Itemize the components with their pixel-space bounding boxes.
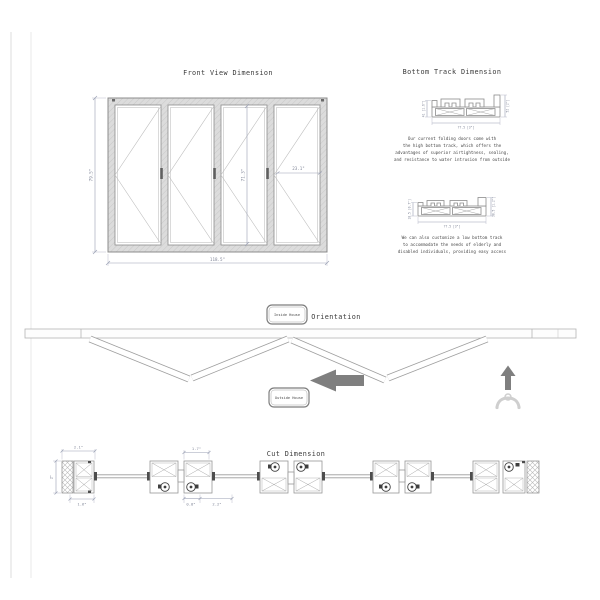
front-view-title: Front View Dimension: [183, 69, 273, 77]
svg-text:77.5 [3"]: 77.5 [3"]: [444, 225, 461, 229]
svg-text:advantages of superior airtigh: advantages of superior airtightness, sea…: [395, 150, 508, 155]
slide-direction-arrow-icon: [310, 370, 364, 392]
cut-hinge-cluster-top: [260, 461, 322, 493]
sheet-border: [11, 32, 31, 578]
svg-text:23.1": 23.1": [292, 166, 305, 171]
svg-text:77.5 [3"]: 77.5 [3"]: [458, 126, 475, 130]
front-width-dimension: 118.5": [106, 254, 329, 266]
svg-text:and resistance to water intrus: and resistance to water intrusion from o…: [394, 157, 510, 162]
svg-text:Our current folding doors come: Our current folding doors come with: [408, 136, 497, 141]
bottom-track-title: Bottom Track Dimension: [403, 68, 502, 76]
person-icon: [495, 394, 520, 409]
svg-text:to accommodate the needs of el: to accommodate the needs of elderly and: [403, 242, 502, 247]
low-track-profile: [418, 198, 486, 217]
cut-dimension-section: Cut Dimension: [49, 445, 540, 507]
svg-text:Inside House: Inside House: [274, 313, 300, 317]
front-height-dimension: 79.5": [89, 96, 107, 254]
svg-text:Outside House: Outside House: [275, 396, 303, 400]
svg-text:the high bottom track, which o: the high bottom track, which offers the: [403, 143, 502, 148]
svg-text:2.2": 2.2": [212, 502, 221, 507]
svg-text:disabled individuals, providin: disabled individuals, providing easy acc…: [398, 249, 507, 254]
front-view-section: Front View Dimension: [89, 69, 330, 266]
cut-glazing: [431, 472, 473, 481]
orientation-title: Orientation: [311, 313, 360, 321]
cut-dimension-title: Cut Dimension: [267, 450, 325, 458]
drawing-sheet: Front View Dimension: [0, 0, 600, 600]
svg-text:71.3": 71.3": [241, 169, 246, 182]
cut-left-jamb: [62, 461, 94, 493]
svg-text:79.5": 79.5": [89, 169, 94, 182]
svg-text:2.1": 2.1": [74, 445, 83, 450]
bottom-track-section: Bottom Track Dimension 41 [1.6"] 5: [394, 68, 510, 254]
svg-text:We can also customize a low bo: We can also customize a low bottom track: [402, 235, 503, 240]
svg-text:41 [1.6"]: 41 [1.6"]: [422, 100, 426, 117]
cut-hinge-cluster-bottom: [373, 461, 431, 493]
folding-panels-plan: [90, 339, 487, 380]
cut-glazing: [212, 472, 260, 481]
svg-text:118.5": 118.5": [210, 257, 225, 262]
cut-glazing: [322, 472, 373, 481]
svg-text:30.5 [1.2"]: 30.5 [1.2"]: [492, 196, 496, 217]
viewer-direction-arrow-icon: [501, 366, 516, 391]
svg-text:2": 2": [49, 475, 54, 480]
orientation-section: Inside House Orientation Outside House: [25, 305, 576, 409]
low-track-description: We can also customize a low bottom track…: [398, 235, 507, 254]
outside-house-badge: Outside House: [269, 388, 309, 407]
svg-text:1.7": 1.7": [192, 446, 201, 451]
cut-glazing: [94, 472, 150, 481]
track-plan-view: [25, 329, 576, 338]
cut-right-jamb: [473, 461, 539, 493]
svg-text:1.6": 1.6": [77, 502, 86, 507]
cut-hinge-cluster-bottom: [150, 461, 212, 493]
drawing-canvas: Front View Dimension: [0, 0, 600, 600]
svg-text:52 [2"]: 52 [2"]: [506, 99, 510, 112]
svg-text:18.5 [0.7"]: 18.5 [0.7"]: [408, 199, 412, 220]
svg-text:0.8": 0.8": [186, 502, 195, 507]
inside-house-badge: Inside House: [267, 305, 307, 324]
high-track-description: Our current folding doors come with the …: [394, 136, 510, 162]
high-track-profile: [432, 95, 500, 117]
front-view-door-drawing: [108, 98, 327, 252]
